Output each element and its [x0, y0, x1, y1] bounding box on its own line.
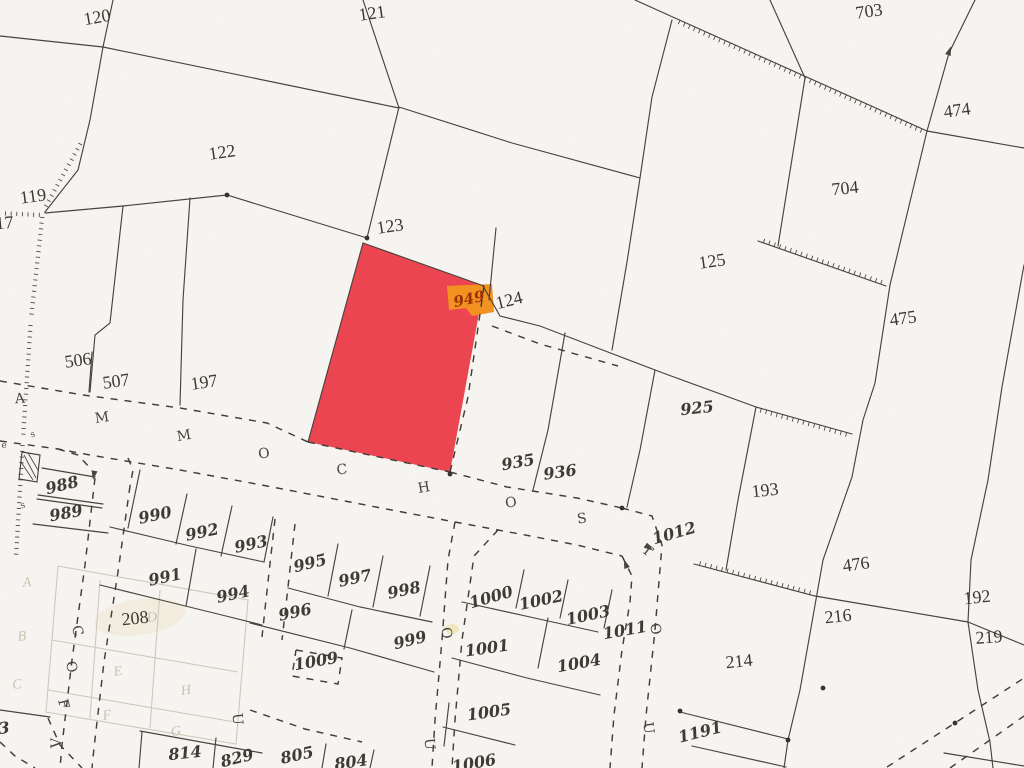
parcel-label-125: 125: [697, 249, 727, 273]
parcel-label-507: 507: [101, 369, 131, 393]
parcel-label-219: 219: [975, 626, 1003, 648]
street-letter-O: O: [504, 494, 518, 511]
parcel-label-121: 121: [357, 1, 387, 25]
parcel-label-193: 193: [751, 479, 780, 502]
faint-letter-D: D: [145, 610, 158, 626]
parcel-label-119: 119: [19, 184, 48, 207]
street-letter-U: U: [639, 721, 657, 735]
parcel-label-208: 208: [121, 607, 150, 630]
parcel-label-917: 917: [0, 212, 14, 234]
parcel-label-474: 474: [942, 98, 972, 122]
parcel-label-703: 703: [854, 0, 884, 23]
parcel-label-475: 475: [888, 306, 918, 330]
street-letter-M: M: [176, 427, 193, 445]
parcel-label-216: 216: [824, 605, 853, 628]
parcel-label-192: 192: [963, 586, 992, 609]
map-viewport: 949 120121703474122704119917123125475124…: [0, 0, 1024, 768]
street-letter-C: C: [336, 461, 349, 478]
parcel-label-506: 506: [63, 348, 93, 372]
parcel-label-814: 814: [166, 742, 202, 764]
mark-e: e: [1, 441, 6, 451]
street-letter-V: V: [49, 737, 65, 749]
parcel-label-925: 925: [679, 397, 714, 419]
street-letter-U: U: [229, 712, 246, 725]
faint-letter-G: G: [170, 724, 182, 740]
street-letter-O: O: [257, 445, 271, 462]
parcel-label-122: 122: [207, 140, 237, 164]
parcel-label-214: 214: [725, 650, 754, 673]
street-letter-M: M: [94, 409, 110, 427]
street-letter-U: U: [421, 738, 438, 751]
parcel-label-123: 123: [375, 214, 405, 238]
street-letter-O: O: [437, 626, 454, 640]
cadastral-map-canvas: 949 120121703474122704119917123125475124…: [0, 0, 1024, 768]
paper-grain: [0, 0, 1024, 768]
parcel-label-704: 704: [831, 177, 860, 200]
parcel-label-197: 197: [189, 370, 219, 394]
parcel-label-476: 476: [841, 552, 871, 576]
